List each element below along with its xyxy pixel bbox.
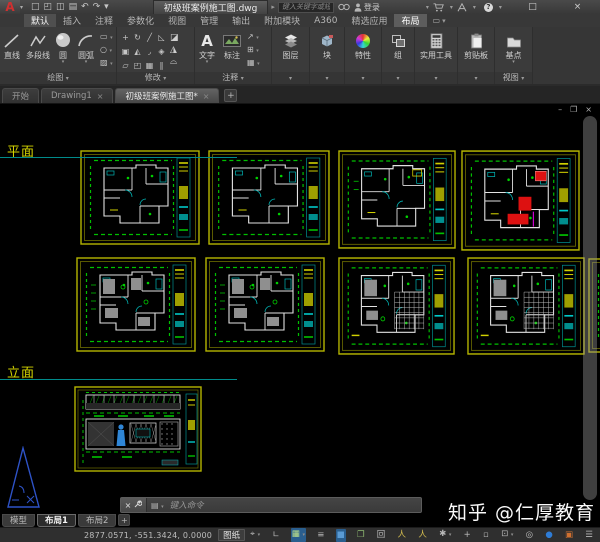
dimension-icon — [223, 31, 241, 51]
panel-label-draw[interactable]: 绘图 ▾ — [0, 72, 116, 84]
markup-icon[interactable]: ▦ ▾ — [247, 57, 260, 70]
maximize-button[interactable]: □ — [510, 0, 555, 14]
arc-tool[interactable]: 圆弧 ▾ — [74, 29, 98, 71]
block-label: 块 — [323, 51, 331, 60]
group-icon — [391, 31, 406, 51]
layout-tab-布局2[interactable]: 布局2 — [78, 514, 116, 527]
minimize-button[interactable]: – — [465, 0, 510, 14]
ribbon-tab-输出[interactable]: 输出 — [225, 14, 257, 27]
offset-icon[interactable]: ∥ — [156, 59, 167, 72]
ribbon-tab-管理[interactable]: 管理 — [193, 14, 225, 27]
exchange-caret-icon[interactable]: ▾ — [426, 4, 429, 11]
redo-icon[interactable]: ↷ — [93, 0, 101, 14]
base-point-icon — [506, 31, 522, 51]
layers-icon — [283, 31, 299, 51]
panel-label-layers[interactable]: ▾ — [272, 72, 309, 84]
annotation-scale-icon[interactable]: ✱ ▾ — [438, 528, 452, 542]
panel-label-properties[interactable]: ▾ — [345, 72, 381, 84]
properties-label: 特性 — [355, 51, 371, 60]
autocad-window: A ▾ □◰◫▤↶↷▾ 初级班案例施工图.dwg ▸ 键入关键字或短语 登录 ▾… — [0, 0, 600, 542]
layers-label: 图层 — [283, 51, 299, 60]
line-label: 直线 — [4, 51, 20, 60]
layout-tab-bar: 模型布局1布局2+ — [2, 513, 130, 527]
scale-icon[interactable]: ◰ — [132, 59, 143, 72]
text-caret-icon[interactable]: ▾ — [206, 60, 209, 65]
panel-label-annotate[interactable]: 注释 ▾ — [195, 72, 271, 84]
file-tab-label: Drawing1 — [51, 91, 92, 101]
selection-cycling-icon[interactable]: ❐ — [356, 529, 366, 542]
move-icon[interactable]: + — [120, 31, 131, 44]
autocad-logo[interactable]: A — [0, 0, 20, 14]
utilities-tool[interactable]: 实用工具 — [420, 29, 452, 71]
watermark-text: 知乎 @仁厚教育 — [448, 498, 595, 525]
search-input[interactable]: 键入关键字或短语 — [278, 2, 334, 13]
annotate-extra-tools: ↗ ▾⊞ ▾▦ ▾ — [247, 29, 260, 71]
panel-layers: 图层 ▾ — [272, 27, 310, 84]
arc-icon — [77, 31, 95, 51]
copy-icon[interactable]: ▣ — [120, 45, 131, 58]
panel-block: 块 ▾ — [310, 27, 345, 84]
ortho-mode-icon[interactable]: ∟ — [271, 529, 280, 542]
open-file-icon[interactable]: ◰ — [44, 0, 53, 14]
osnap-tracking-icon[interactable]: ⌖ ▾ — [249, 528, 261, 542]
panel-label-view[interactable]: 视图 ▾ — [495, 72, 532, 84]
arc-caret-icon[interactable]: ▾ — [85, 60, 88, 65]
quick-properties-icon[interactable]: ⊡ ▾ — [500, 528, 514, 542]
isolate-objects-icon[interactable]: ◎ — [525, 529, 534, 542]
base-point-tool[interactable]: 基点 ▾ — [506, 29, 522, 71]
line-tool[interactable]: 直线 — [0, 29, 24, 71]
app-store-cart-icon[interactable] — [433, 3, 444, 12]
workspace-switch-icon[interactable]: + — [463, 529, 472, 542]
autoscale-icon[interactable]: 人 — [417, 529, 428, 542]
group-tool[interactable]: 组 — [391, 29, 406, 71]
paper-space-toggle[interactable]: 图纸 — [218, 529, 245, 541]
app-menu-caret-icon[interactable]: ▾ — [20, 4, 23, 11]
recent-commands-icon[interactable]: ▤ ▾ — [151, 501, 164, 510]
ribbon-tab-视图[interactable]: 视图 — [161, 14, 193, 27]
dimension-tool[interactable]: 标注 — [219, 29, 245, 71]
polyline-label: 多段线 — [26, 51, 50, 60]
stretch-icon[interactable]: ▱ — [120, 59, 131, 72]
ribbon-tab-默认[interactable]: 默认 — [24, 14, 56, 27]
clipboard-tool[interactable]: 剪贴板 — [464, 29, 488, 71]
ribbon-tab-注释[interactable]: 注释 — [88, 14, 120, 27]
dynamic-ucs-icon[interactable]: 回 — [376, 529, 387, 542]
customization-icon[interactable]: ☰ — [584, 529, 594, 542]
hatch-icon[interactable]: ▨ ▾ — [100, 57, 113, 70]
qat-dropdown-icon[interactable]: ▾ — [104, 0, 109, 14]
ribbon-tab-附加模块[interactable]: 附加模块 — [257, 14, 307, 27]
properties-tool[interactable]: 特性 — [355, 29, 371, 71]
units-icon[interactable]: ▫ — [482, 529, 490, 542]
floor-plan-thumbnail-furniture[interactable] — [76, 257, 196, 352]
panel-label-block[interactable]: ▾ — [310, 72, 344, 84]
command-close-icon[interactable]: × — [125, 501, 132, 510]
ribbon: 直线 多段线 圆 ▾ 圆弧 ▾ — [0, 27, 600, 86]
titlebar: A ▾ □◰◫▤↶↷▾ 初级班案例施工图.dwg ▸ 键入关键字或短语 登录 ▾… — [0, 0, 600, 14]
annotation-visibility-icon[interactable]: 人 — [397, 529, 408, 542]
command-wrench-icon[interactable] — [134, 500, 142, 510]
ribbon-tab-布局[interactable]: 布局 — [394, 14, 426, 27]
command-input[interactable]: 键入命令 — [170, 499, 204, 511]
erase-alt-icon[interactable]: ◪ — [170, 32, 179, 44]
panel-annotate: A 文字 ▾ 标注 ↗ ▾⊞ ▾▦ ▾ 注释 ▾ — [195, 27, 272, 84]
text-tool[interactable]: A 文字 ▾ — [195, 29, 219, 71]
file-tab-label: 初级班案例施工图* — [125, 90, 197, 102]
new-file-icon[interactable]: □ — [31, 0, 40, 14]
ribbon-tab-extra-icon[interactable]: ▭▾ — [427, 14, 446, 27]
panel-clipboard: 剪贴板 ▾ — [458, 27, 495, 84]
polyline-icon — [29, 31, 47, 51]
floor-plan-thumbnail-walls[interactable] — [208, 150, 330, 245]
layout-tab-布局1[interactable]: 布局1 — [37, 514, 76, 527]
file-tab-close-icon[interactable]: × — [203, 92, 210, 101]
transparency-icon[interactable]: ■ — [336, 529, 346, 542]
calculator-icon — [430, 31, 443, 51]
file-tab-close-icon[interactable]: × — [97, 92, 104, 101]
quick-access-toolbar: □◰◫▤↶↷▾ — [31, 0, 109, 14]
trim-icon[interactable]: ╱ — [144, 31, 155, 44]
explode-icon[interactable]: ◈ — [156, 45, 167, 58]
clipboard-icon — [470, 31, 483, 51]
draw-extra-tools: ▭ ▾○ ▾▨ ▾ — [100, 29, 113, 71]
erase-icon[interactable]: ◺ — [156, 31, 167, 44]
snap-grid-icon[interactable]: ▦ ▾ — [291, 528, 306, 542]
clean-screen-icon[interactable]: ▣ — [564, 529, 574, 542]
line-icon — [3, 31, 21, 51]
doc-close-button[interactable]: × — [585, 105, 592, 114]
ribbon-empty-space — [533, 27, 600, 84]
utilities-label: 实用工具 — [420, 51, 452, 60]
ribbon-tab-参数化[interactable]: 参数化 — [120, 14, 161, 27]
break-icon[interactable]: ⌓ — [170, 56, 179, 68]
mirror-icon[interactable]: ◭ — [132, 45, 143, 58]
coordinates-display: 2877.0571, -551.3424, 0.0000 — [84, 531, 212, 540]
ribbon-tab-bar: 默认插入注释参数化视图管理输出附加模块A360精选应用布局▭▾ — [0, 14, 600, 27]
modify-side-tools: ◪◮⌓ — [170, 29, 179, 71]
circle-caret-icon[interactable]: ▾ — [62, 60, 65, 65]
text-icon: A — [201, 31, 213, 51]
ribbon-tab-插入[interactable]: 插入 — [56, 14, 88, 27]
lineweight-icon[interactable]: ≡ — [316, 529, 325, 542]
panel-label-utilities[interactable]: ▾ — [415, 72, 457, 84]
panel-utilities: 实用工具 ▾ — [415, 27, 458, 84]
graphics-performance-icon[interactable]: ● — [544, 529, 553, 542]
drawing-canvas[interactable]: – ❐ × — [0, 104, 600, 527]
close-button[interactable]: × — [555, 0, 600, 14]
panel-group: 组 ▾ — [382, 27, 415, 84]
vertical-scrollbar[interactable] — [583, 116, 597, 500]
elevation-thumbnail[interactable] — [74, 386, 202, 472]
floor-plan-thumbnail-grid[interactable] — [338, 257, 455, 355]
panel-properties: 特性 ▾ — [345, 27, 382, 84]
block-icon — [319, 31, 335, 51]
fillet-icon[interactable]: ◞ — [144, 45, 155, 58]
new-file-tab-button[interactable]: + — [224, 89, 237, 102]
search-binoculars-icon[interactable] — [338, 3, 350, 11]
panel-draw: 直线 多段线 圆 ▾ 圆弧 ▾ — [0, 27, 117, 84]
panel-modify: +↻╱◺▣◭◞◈▱◰▦∥ ◪◮⌓ 修改 ▾ — [117, 27, 195, 84]
floor-plan-thumbnail-grid[interactable] — [467, 257, 585, 355]
cart-caret-icon[interactable]: ▾ — [450, 4, 453, 11]
circle-icon — [54, 31, 72, 51]
panel-label-modify[interactable]: 修改 ▾ — [117, 72, 194, 84]
plot-icon[interactable]: ▤ — [69, 0, 78, 14]
rotate-icon[interactable]: ↻ — [132, 31, 143, 44]
modify-tool-grid: +↻╱◺▣◭◞◈▱◰▦∥ — [117, 29, 167, 71]
section-underline — [0, 379, 237, 380]
group-label: 组 — [394, 51, 402, 60]
table-icon[interactable]: ⊞ ▾ — [247, 44, 260, 57]
ribbon-tab-精选应用[interactable]: 精选应用 — [344, 14, 394, 27]
block-tool[interactable]: 块 — [319, 29, 335, 71]
dimension-label: 标注 — [224, 51, 240, 60]
join-icon[interactable]: ◮ — [170, 44, 179, 56]
document-window-controls: – ❐ × — [558, 105, 592, 114]
floor-plan-thumbnail-furniture[interactable] — [205, 257, 325, 352]
ellipse-icon[interactable]: ○ ▾ — [100, 44, 113, 57]
panel-label-clipboard[interactable]: ▾ — [458, 72, 494, 84]
clipboard-label: 剪贴板 — [464, 51, 488, 60]
floor-plan-thumbnail-walls[interactable] — [80, 150, 200, 245]
file-tab-label: 开始 — [12, 90, 29, 102]
polyline-tool[interactable]: 多段线 — [24, 29, 52, 71]
signin-label[interactable]: 登录 — [364, 2, 380, 13]
ucs-paper-icon — [4, 446, 44, 514]
floor-plan-thumbnail-walls2[interactable] — [338, 150, 456, 249]
new-layout-button[interactable]: + — [118, 514, 130, 526]
save-icon[interactable]: ◫ — [56, 0, 65, 14]
array-icon[interactable]: ▦ — [144, 59, 155, 72]
file-tab-初级班案例施工图*[interactable]: 初级班案例施工图*× — [115, 88, 219, 103]
undo-icon[interactable]: ↶ — [81, 0, 89, 14]
properties-color-wheel-icon — [356, 31, 370, 51]
command-line[interactable]: × ▤ ▾ 键入命令 — [120, 497, 422, 513]
file-tab-bar: 开始Drawing1×初级班案例施工图*×+ — [0, 86, 600, 104]
window-controls: – □ × — [465, 0, 600, 14]
base-point-caret-icon[interactable]: ▾ — [512, 60, 515, 65]
file-tab-Drawing1[interactable]: Drawing1× — [41, 88, 113, 103]
circle-tool[interactable]: 圆 ▾ — [52, 29, 74, 71]
search-placeholder: 键入关键字或短语 — [282, 2, 330, 12]
panel-view: 基点 ▾ 视图 ▾ — [495, 27, 533, 84]
doc-minimize-button[interactable]: – — [558, 105, 562, 114]
section-underline — [0, 157, 237, 158]
doc-restore-button[interactable]: ❐ — [570, 105, 577, 114]
panel-label-group[interactable]: ▾ — [382, 72, 414, 84]
file-tab-开始[interactable]: 开始 — [2, 88, 39, 103]
floor-plan-thumbnail-red[interactable] — [461, 150, 580, 251]
document-title: 初级班案例施工图.dwg — [153, 0, 269, 14]
ribbon-tab-A360[interactable]: A360 — [307, 14, 344, 27]
user-icon[interactable] — [354, 3, 362, 12]
status-bar: 2877.0571, -551.3424, 0.0000 图纸 ⌖ ▾∟▦ ▾≡… — [0, 527, 600, 542]
leader-icon[interactable]: ↗ ▾ — [247, 31, 260, 44]
status-icons: ⌖ ▾∟▦ ▾≡■❐回人人✱ ▾+▫⊡ ▾◎●▣☰ — [249, 528, 600, 542]
layers-tool[interactable]: 图层 — [283, 29, 299, 71]
command-line-grip[interactable]: × — [121, 498, 147, 512]
rectangle-icon[interactable]: ▭ ▾ — [100, 31, 113, 44]
layout-tab-模型[interactable]: 模型 — [2, 514, 35, 527]
title-arrow-icon[interactable]: ▸ — [271, 3, 275, 11]
